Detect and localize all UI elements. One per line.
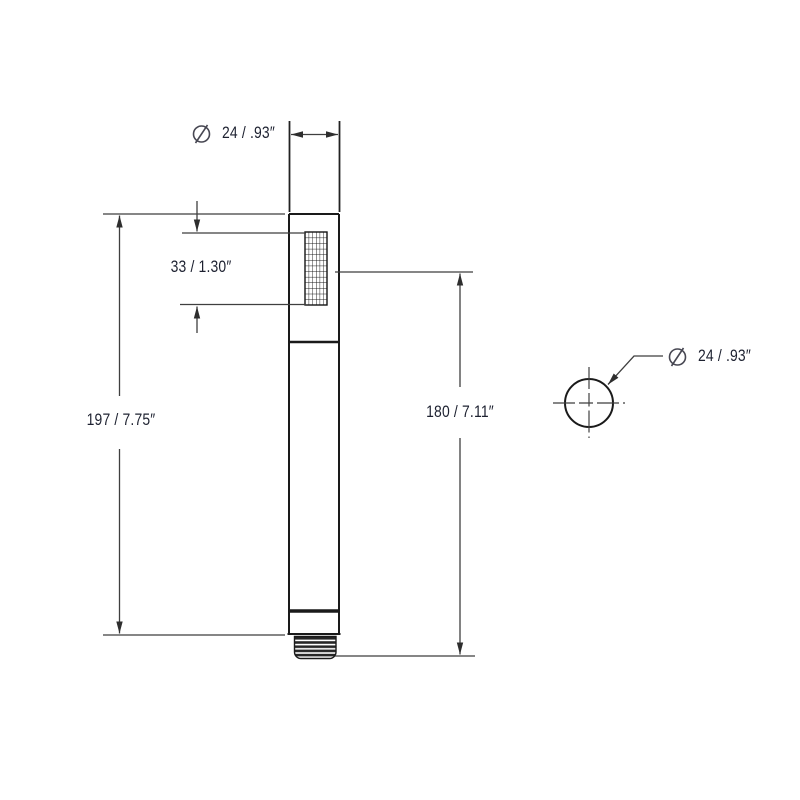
elevation-diameter-label: 24 / .93″ (222, 123, 275, 143)
top-view-diameter-label: 24 / .93″ (698, 346, 751, 366)
elevation-diameter-callout: 24 / .93″ (190, 120, 287, 146)
spray-face-dimension-label: 33 / 1.30″ (171, 257, 232, 277)
diameter-icon (666, 345, 689, 368)
face-to-outlet-dimension-label: 180 / 7.11″ (426, 402, 494, 422)
diameter-icon (190, 122, 213, 145)
drawing-linework (0, 0, 800, 800)
top-view-circle (553, 356, 663, 438)
dimension-diameter-elevation (290, 121, 340, 212)
overall-length-dimension-label: 197 / 7.75″ (87, 410, 156, 430)
thread-connector (295, 637, 337, 659)
dimension-face-to-outlet (335, 272, 475, 656)
spray-face-grid (305, 232, 327, 305)
diameter-leader-line (608, 356, 663, 385)
top-view-diameter-callout: 24 / .93″ (666, 343, 763, 369)
technical-drawing-sheet: 24 / .93″ 33 / 1.30″ 197 / 7.75″ 180 / 7… (0, 0, 800, 800)
